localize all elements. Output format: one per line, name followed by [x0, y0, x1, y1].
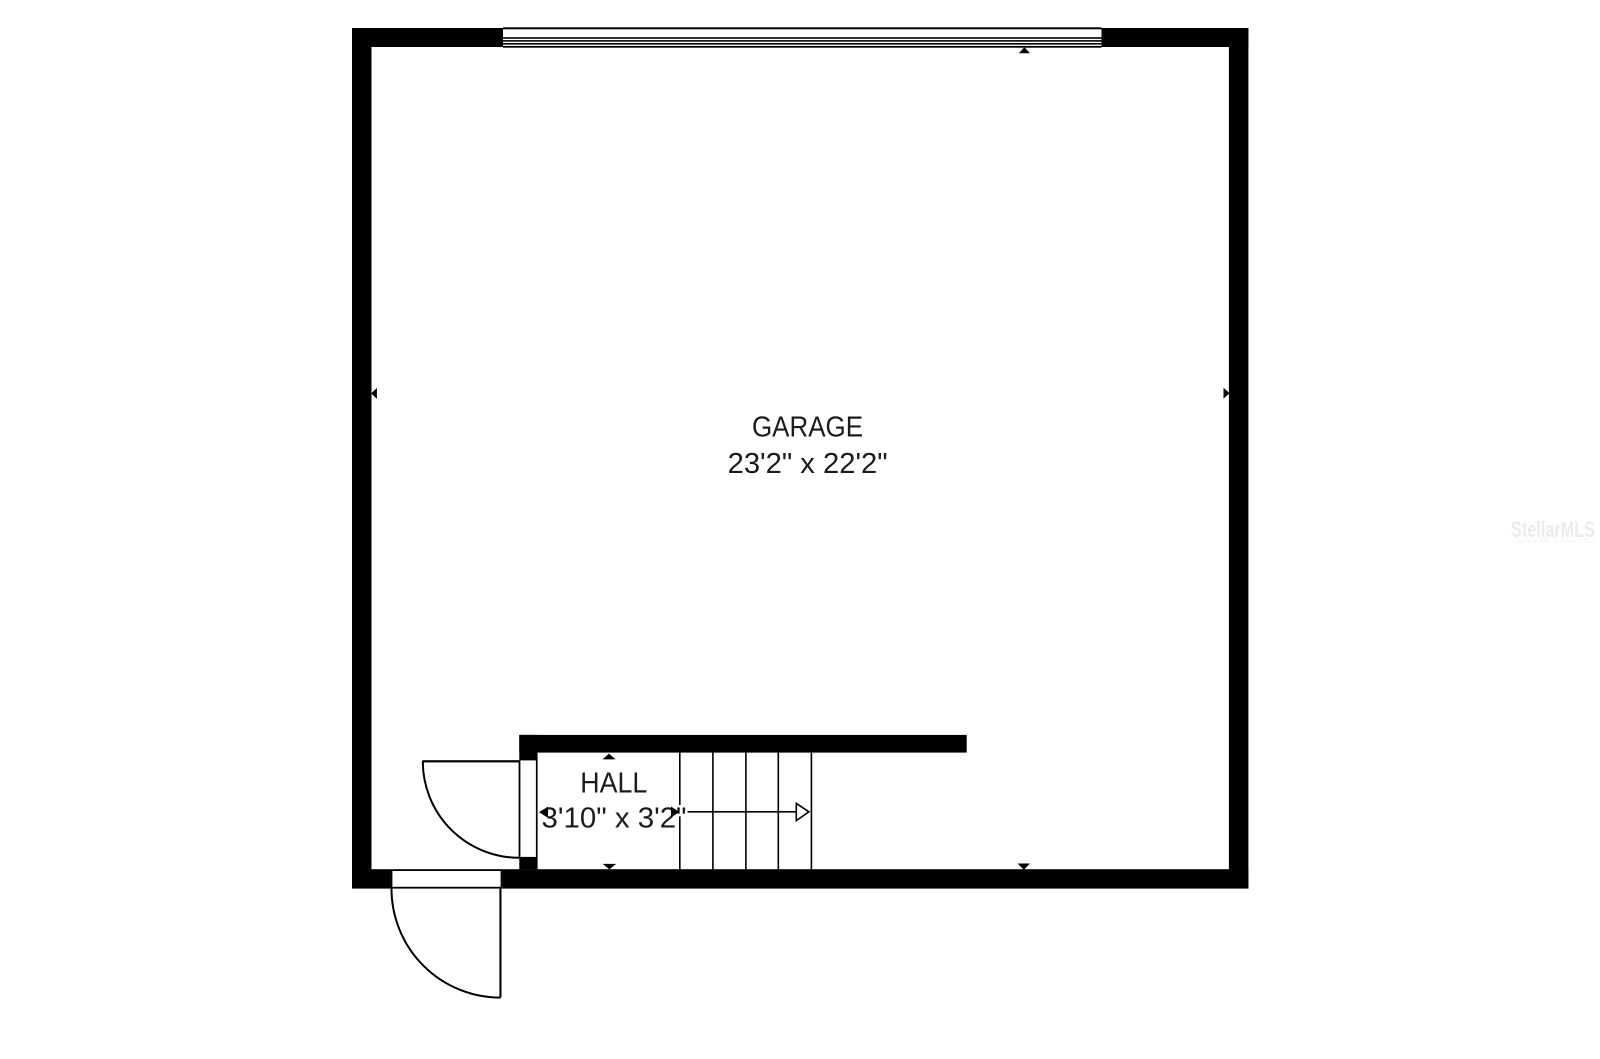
- svg-text:23'2" x 22'2": 23'2" x 22'2": [728, 448, 888, 480]
- svg-text:HALL: HALL: [580, 768, 647, 800]
- svg-text:3'10" x 3'2": 3'10" x 3'2": [542, 802, 687, 834]
- svg-text:GARAGE: GARAGE: [752, 412, 863, 444]
- svg-text:Stellar MLS floor plan: Stellar MLS floor plan: [1513, 535, 1595, 545]
